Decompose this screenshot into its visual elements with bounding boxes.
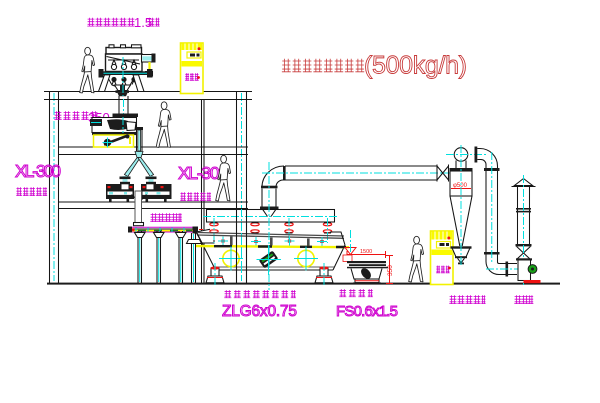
svg-text:ZLG6x0.75: ZLG6x0.75	[222, 303, 297, 320]
svg-text:1500: 1500	[360, 249, 372, 255]
svg-text:350: 350	[387, 265, 394, 276]
svg-text:φ500: φ500	[453, 183, 468, 189]
svg-text:XL-300: XL-300	[15, 161, 61, 181]
svg-text:FS0.6x1.5: FS0.6x1.5	[336, 303, 398, 320]
svg-text:(500kg/h): (500kg/h)	[364, 52, 467, 80]
